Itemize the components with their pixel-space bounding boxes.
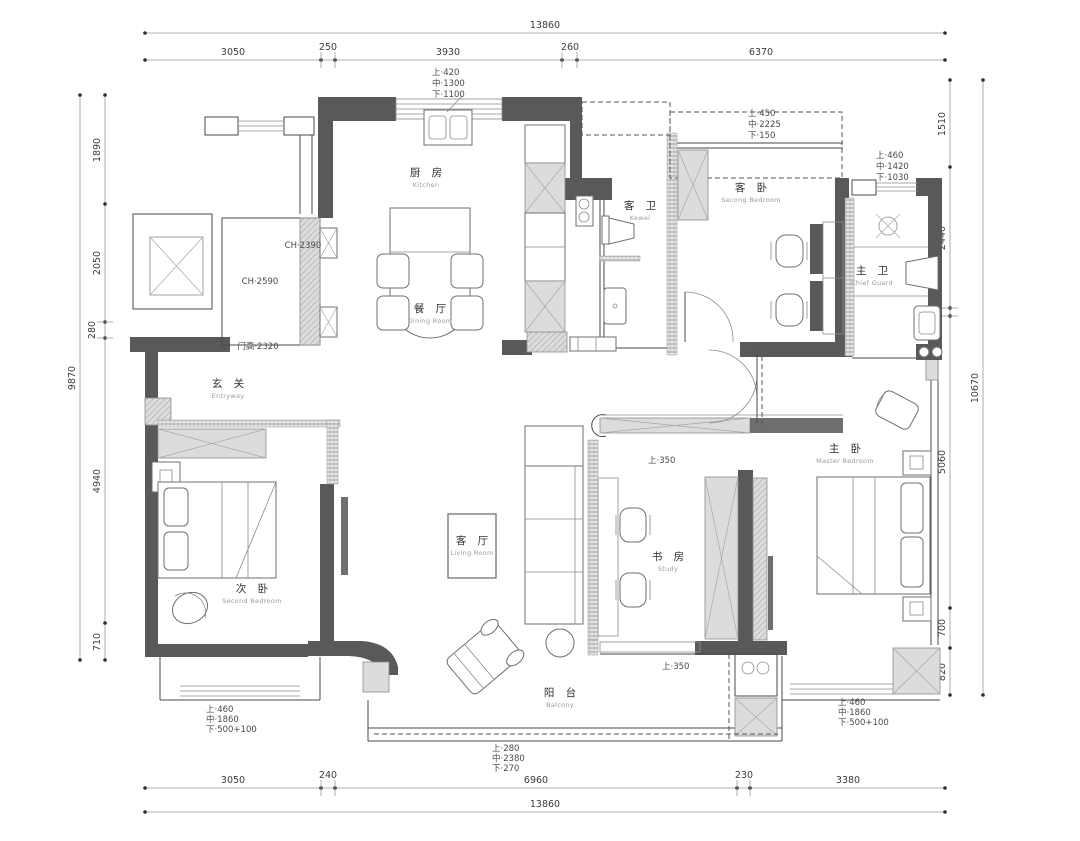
dining-chair (377, 254, 409, 288)
living-room-furniture (443, 426, 583, 698)
toilet (602, 216, 609, 244)
pillow (901, 537, 923, 587)
dim-right-4: 5060 (937, 450, 948, 474)
room-label-master-bedroom: 主 卧 (829, 442, 865, 455)
pillow (901, 483, 923, 533)
room-label-guest-bath-en: Kewei (630, 214, 651, 222)
master-bath-window (876, 183, 918, 191)
room-label-dining-en: Dining Room (408, 317, 453, 325)
dim-left-3: 280 (87, 321, 98, 339)
ann-beam-study-top: 上·350 (648, 456, 675, 466)
dim-top-total: 13860 (530, 20, 560, 31)
bathroom-sink (604, 288, 626, 324)
ann-balcony-window-2: 中·2380 (492, 753, 525, 764)
dim-bottom-3: 6960 (524, 775, 548, 786)
round-table (546, 629, 574, 657)
ann-master-bath-window-2: 中·1420 (876, 161, 909, 172)
tv-panel (768, 556, 773, 630)
dim-bottom-total: 13860 (530, 799, 560, 810)
ann-ceiling-height-hall: CH·2390 (285, 241, 322, 251)
room-label-second-bedroom: 次 卧 (236, 582, 272, 595)
office-chair (620, 508, 646, 542)
lounge-chair (443, 616, 527, 698)
room-label-living-en: Living Room (450, 549, 493, 557)
room-label-master-bath: 主 卫 (856, 265, 892, 277)
office-chair (620, 573, 646, 607)
pillow (164, 488, 188, 526)
room-label-living: 客 厅 (456, 534, 492, 547)
dim-left-1: 1890 (92, 138, 103, 162)
dim-left-4: 4940 (92, 469, 103, 493)
ann-master-bedroom-window-1: 上·460 (838, 698, 865, 708)
guest-bedroom-door-arc (685, 292, 733, 342)
room-label-master-bedroom-en: Master Bedroom (816, 457, 874, 465)
room-label-study-en: Study (658, 565, 678, 573)
dim-top-4: 260 (561, 42, 579, 53)
nightstand (903, 597, 931, 621)
ann-ceiling-height-storage: CH·2590 (242, 277, 279, 287)
ann-balcony-window-3: 下·270 (492, 764, 519, 774)
ann-guest-bedroom-window-1: 上·450 (748, 109, 775, 119)
dim-top-2: 250 (319, 42, 337, 53)
ann-balcony-window-1: 上·280 (492, 744, 519, 754)
dim-left-5: 710 (92, 633, 103, 651)
kitchen-sink (424, 110, 472, 145)
ann-kitchen-window-2: 中·1300 (432, 78, 465, 89)
room-label-entry-en: Entryway (212, 392, 245, 400)
side-table (525, 426, 583, 466)
doors (685, 292, 757, 423)
room-label-kitchen-en: Kitchen (413, 181, 440, 189)
dimension-right: 1510 2440 140 5060 700 820 10670 (932, 78, 985, 697)
desk (810, 281, 823, 331)
dim-top-1: 3050 (221, 47, 245, 58)
hall-door-arc-2 (709, 375, 757, 423)
room-label-guest-bedroom-en: Secong Bedroom (721, 196, 781, 204)
room-label-guest-bedroom: 客 卧 (735, 181, 771, 194)
nightstand (903, 451, 931, 475)
sofa (525, 466, 583, 624)
tv-panel (341, 497, 348, 575)
dim-top-3: 3930 (436, 47, 460, 58)
dim-left-2: 2050 (92, 251, 103, 275)
guest-bedroom-furniture (678, 150, 843, 334)
ann-second-bedroom-window-2: 中·1860 (206, 714, 239, 725)
dim-bottom-4: 230 (735, 770, 753, 781)
cooktop (576, 196, 593, 226)
room-label-dining: 餐 厅 (414, 302, 450, 315)
master-bedroom-window (790, 684, 893, 694)
ann-beam-study-bottom: 上·350 (662, 662, 689, 672)
study-desk (598, 478, 618, 636)
ann-second-bedroom-window-1: 上·460 (206, 705, 233, 715)
dim-right-1: 1510 (937, 112, 948, 136)
office-chair (776, 294, 803, 326)
room-label-balcony-en: Balcony (546, 701, 574, 709)
dining-chair (377, 296, 409, 330)
ann-master-bath-window-1: 上·460 (876, 151, 903, 161)
entry-cabinets (320, 228, 337, 337)
ann-guest-bedroom-window-3: 下·150 (748, 131, 775, 141)
bathtub (906, 256, 938, 290)
floor-plan-drawing: 13860 3050 250 3930 260 6370 3050 240 69… (0, 0, 1080, 841)
room-label-master-bath-en: Chief Guard (851, 279, 893, 287)
room-label-second-bedroom-en: Second Bedroom (222, 597, 282, 605)
office-chair (776, 235, 803, 267)
room-label-guest-bath: 客 卫 (624, 199, 660, 212)
ann-master-bath-window-3: 下·1030 (876, 173, 909, 183)
ann-master-bedroom-window-2: 中·1860 (838, 707, 871, 718)
dimension-bottom: 3050 240 6960 230 3380 13860 (143, 770, 947, 814)
dim-right-total: 10670 (970, 373, 981, 403)
ann-master-bedroom-window-3: 下·500+100 (838, 718, 889, 728)
ann-second-bedroom-window-3: 下·500+100 (206, 725, 257, 735)
dim-bottom-2: 240 (319, 770, 337, 781)
dining-chair (451, 296, 483, 330)
bathroom-sink (914, 306, 940, 340)
room-label-balcony: 阳 台 (544, 686, 580, 699)
hall-door-arc-1 (709, 350, 757, 398)
floor-plan-page: 13860 3050 250 3930 260 6370 3050 240 69… (0, 0, 1080, 841)
room-label-entry: 玄 关 (212, 377, 248, 390)
dim-left-total: 9870 (67, 366, 78, 390)
second-bedroom-window (180, 686, 300, 696)
dining-chair (451, 254, 483, 288)
dim-right-5: 700 (937, 619, 948, 637)
dimension-left: 9870 1890 2050 280 4940 710 (67, 93, 113, 662)
ann-door-height: 门高·2320 (237, 341, 278, 352)
desk (810, 224, 823, 274)
ann-guest-bedroom-window-2: 中·2225 (748, 119, 781, 130)
ann-kitchen-window-1: 上·420 (432, 68, 459, 78)
guest-bath-fixtures (602, 216, 634, 324)
dim-top-5: 6370 (749, 47, 773, 58)
dim-bottom-5: 3380 (836, 775, 860, 786)
room-label-study: 书 房 (652, 550, 688, 563)
pillow (164, 532, 188, 570)
chair (872, 388, 920, 431)
room-label-kitchen: 厨 房 (410, 166, 446, 179)
dim-bottom-1: 3050 (221, 775, 245, 786)
dimension-top: 13860 3050 250 3930 260 6370 (143, 20, 947, 68)
ann-kitchen-window-3: 下·1100 (432, 90, 465, 100)
